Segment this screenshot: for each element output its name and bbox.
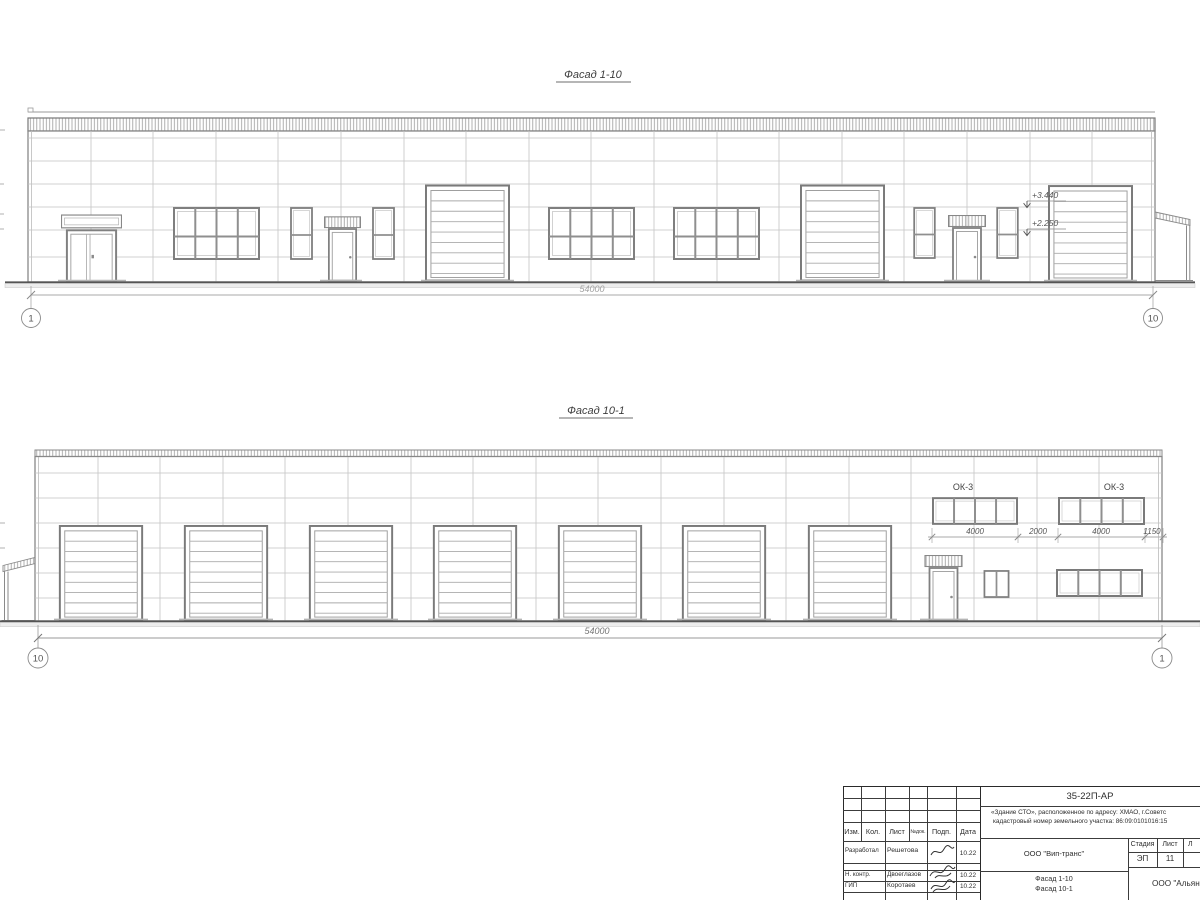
garage-door [60,526,142,620]
facade1-fascia-band [28,118,1155,131]
axis-marker-left: 10 [28,648,48,668]
sheet-value: 11 [1157,855,1183,864]
row-role: Н. контр. [845,872,885,879]
svg-text:10: 10 [1148,314,1159,325]
sheets-header: Л [1188,841,1200,849]
garage-door [310,526,392,620]
window [997,208,1018,258]
window [549,208,634,259]
dimension-text: 54000 [579,284,604,294]
stage-value: ЭП [1128,855,1157,864]
facade-1-10: Фасад 1-10 [0,69,1195,328]
elevation-lower: +2.250 [1032,218,1059,228]
sheet-name-line1: Фасад 1-10 [980,875,1128,883]
left-cut-marks [0,130,5,229]
facade-10-1: Фасад 10-1 ОК-3 ОК-3 4000 2000 4000 1150 [0,405,1200,668]
project-address-line1: «Здание СТО», расположенное по адресу: Х… [991,809,1200,816]
row-role: Разработал [845,848,885,855]
window [1057,570,1142,596]
sheet-header: Лист [1157,841,1183,849]
garage-door [809,526,891,620]
axis-marker-right: 10 [1144,309,1163,328]
entrance-door [61,215,121,281]
col-header-list: Лист [885,828,909,836]
window [373,208,394,259]
window [674,208,759,259]
garage-door [801,186,884,281]
row-name: Двоеглазов [887,871,929,878]
left-cut-marks [0,523,5,548]
doc-number: 35-22П-АР [980,792,1200,802]
svg-text:2000: 2000 [1028,527,1047,536]
org-name: ООО "Альян [1152,879,1200,888]
svg-text:10: 10 [33,654,44,665]
dimension-text: 54000 [584,626,609,636]
svg-text:1: 1 [28,314,33,325]
row-name: Коротаев [887,882,929,889]
col-header-data: Дата [956,828,980,836]
company-name: ООО "Вип-транс" [980,850,1128,858]
row-date: 10.22 [956,883,980,890]
garage-door [683,526,765,620]
elevation-upper: +3.440 [1032,190,1059,200]
window [914,208,935,258]
facade2-title: Фасад 10-1 [567,405,625,417]
facades-drawing: Фасад 1-10 [0,0,1200,900]
window-ok3 [1059,498,1144,524]
axis-marker-left: 1 [22,309,41,328]
axis-marker-right: 1 [1152,648,1172,668]
sheet-name-line2: Фасад 10-1 [980,885,1128,893]
row-date: 10.22 [956,872,980,879]
svg-text:1150: 1150 [1143,527,1161,536]
window-ok3 [933,498,1017,524]
entrance-door [925,556,962,622]
svg-text:1: 1 [1159,654,1164,665]
svg-text:4000: 4000 [1092,527,1110,536]
lean-to-right [1155,212,1193,281]
col-header-ndok: №док. [909,830,927,836]
drawing-sheet: Фасад 1-10 [0,0,1200,900]
row-role: ГИП [845,883,885,890]
window-label: ОК-3 [1104,482,1124,492]
garage-door [185,526,267,620]
facade1-title: Фасад 1-10 [564,69,623,81]
svg-text:4000: 4000 [966,527,984,536]
stage-header: Стадия [1128,841,1157,849]
window [174,208,259,259]
title-block: 35-22П-АР «Здание СТО», расположенное по… [843,786,1200,900]
garage-door [559,526,641,620]
col-header-kol: Кол. [861,828,885,836]
window [291,208,312,259]
entrance-door [324,217,360,281]
row-date: 10.22 [956,850,980,857]
entrance-door [949,216,986,282]
col-header-izm: Изм. [843,828,861,836]
lean-to-left [2,558,36,621]
garage-door [1049,186,1132,281]
facade2-fascia-band [35,450,1162,457]
signature [927,842,956,900]
window-label: ОК-3 [953,482,973,492]
facade2-dimension: 54000 [34,625,1166,648]
garage-door [426,186,509,281]
window [984,571,1008,597]
row-name: Решетова [887,847,927,854]
garage-door [434,526,516,620]
project-address-line2: кадастровый номер земельного участка: 86… [993,818,1200,825]
col-header-podp: Подп. [927,828,956,836]
